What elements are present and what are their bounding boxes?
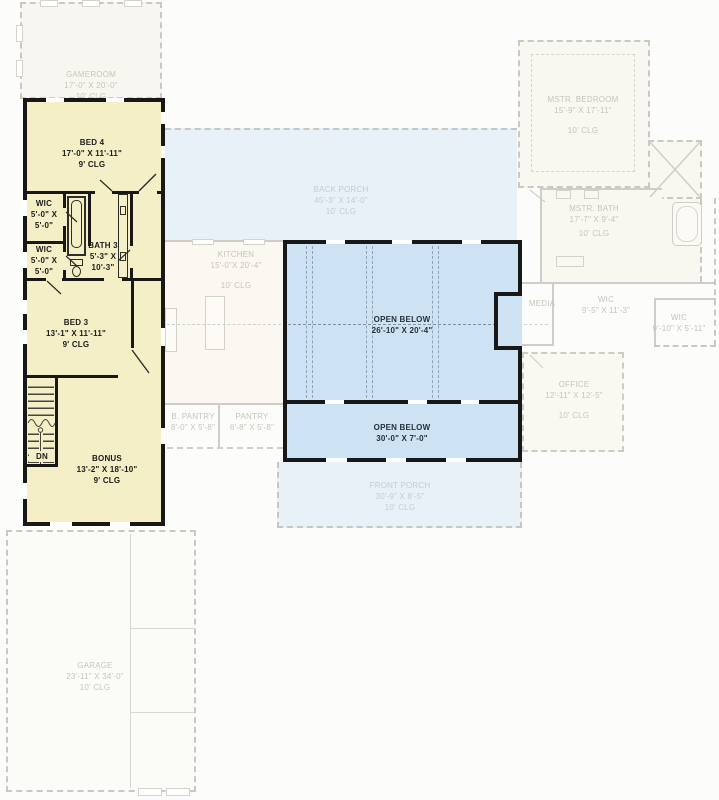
window-icon xyxy=(23,300,27,314)
room-label-bath3: BATH 3 5'-3" X 10'-3" xyxy=(78,240,128,273)
window-icon xyxy=(386,458,406,462)
beam-line xyxy=(312,246,313,398)
room-label-pantry: PANTRY 6'-8" X 5'-8" xyxy=(224,411,280,433)
stairs-treads-upper xyxy=(28,381,54,419)
wall xyxy=(512,282,716,284)
room-label-bed4: BED 4 17'-0" X 11'-11" 9' CLG xyxy=(42,137,142,170)
window-icon xyxy=(408,400,427,404)
wall xyxy=(540,188,542,284)
wall xyxy=(654,298,716,300)
garage-door-icon xyxy=(138,788,162,796)
room-label-wic-master: WIC 9'-5" X 11'-3" xyxy=(556,294,656,316)
window-icon xyxy=(110,522,130,526)
window-icon xyxy=(161,328,165,346)
garage-door-icon xyxy=(166,788,190,796)
door-opening xyxy=(63,252,66,270)
sink-icon xyxy=(584,190,599,199)
sink-icon xyxy=(120,206,126,215)
wall-dashed xyxy=(654,345,716,347)
counter-icon xyxy=(165,308,177,352)
ridge-line xyxy=(524,324,548,325)
room-label-front-porch: FRONT PORCH 30'-9" X 8'-5" 10' CLG xyxy=(330,480,470,513)
window-icon xyxy=(461,400,479,404)
door-opening xyxy=(63,208,66,226)
room-label-bed3: BED 3 13'-1" X 11'-11" 9' CLG xyxy=(26,317,126,350)
wall xyxy=(88,191,91,246)
window-icon xyxy=(161,146,165,158)
vanity-icon xyxy=(556,256,584,267)
room-label-bonus: BONUS 13'-2" X 18'-10" 9' CLG xyxy=(57,453,157,486)
stairs-dn-label: DN xyxy=(29,451,55,462)
window-icon xyxy=(325,400,344,404)
sink-icon xyxy=(556,190,571,199)
door-opening xyxy=(104,278,122,281)
door-opening xyxy=(95,191,112,194)
room-label-garage: GARAGE 23'-11" X 34'-0" 10' CLG xyxy=(40,660,150,693)
porch-edge-dashed xyxy=(167,447,283,449)
wall xyxy=(287,400,518,404)
label-open-below-main: OPEN BELOW 26'-10" X 20'-4" xyxy=(332,314,472,336)
kitchen-island-icon xyxy=(205,296,225,350)
room-label-wic2: WIC 5'-0" X 5'-0" xyxy=(26,244,62,277)
wall xyxy=(131,278,134,348)
window-icon xyxy=(326,240,345,244)
door-opening xyxy=(139,191,157,194)
wall xyxy=(552,284,554,344)
window-icon xyxy=(326,458,347,462)
room-label-b-pantry: B. PANTRY 8'-0" X 5'-8" xyxy=(165,411,221,433)
wall-dashed xyxy=(714,198,716,346)
wall xyxy=(130,628,194,629)
room-label-wic1: WIC 5'-0" X 5'-0" xyxy=(26,198,62,231)
window-icon xyxy=(192,239,214,245)
window-icon xyxy=(161,112,165,124)
window-icon xyxy=(40,0,58,7)
window-icon xyxy=(16,60,23,77)
wall xyxy=(27,464,55,467)
door-opening xyxy=(130,246,133,268)
wall xyxy=(165,240,283,242)
room-label-kitchen: KITCHEN 15'-0"X 20'-4" 10' CLG xyxy=(186,249,286,291)
door-opening xyxy=(46,278,62,281)
room-label-mstr-bedroom: MSTR. BEDROOM 15'-9" X 17'-11" 10' CLG xyxy=(523,94,643,136)
window-icon xyxy=(243,239,265,245)
window-icon xyxy=(124,0,142,7)
window-icon xyxy=(50,522,72,526)
window-icon xyxy=(23,483,27,499)
window-icon xyxy=(462,240,481,244)
wall xyxy=(165,403,283,405)
window-icon xyxy=(106,98,124,102)
window-icon xyxy=(392,240,412,244)
beam-line xyxy=(306,246,307,398)
window-icon xyxy=(82,0,100,7)
room-label-mstr-bath: MSTR. BATH 17'-7" X 9'-4" 10' CLG xyxy=(544,203,644,239)
room-label-wic-master2: WIC 9'-10" X 5'-11" xyxy=(644,312,714,334)
window-icon xyxy=(46,98,64,102)
room-label-back-porch: BACK PORCH 45'-3" X 14'-0" 10' CLG xyxy=(271,184,411,217)
room-label-office: OFFICE 12'-11" X 12'-5" 10' CLG xyxy=(524,379,624,421)
wall xyxy=(130,712,194,713)
label-open-below-front: OPEN BELOW 30'-0" X 7'-0" xyxy=(332,422,472,444)
bathtub-icon-inner xyxy=(676,206,698,242)
floor-plan: GAMEROOM 17'-0" X 20'-0" 10' CLG BACK PO… xyxy=(0,0,719,800)
window-icon xyxy=(16,25,23,42)
wall xyxy=(27,375,118,378)
window-icon xyxy=(446,458,466,462)
fireplace-icon xyxy=(494,292,522,350)
window-icon xyxy=(161,428,165,444)
ridge-line xyxy=(167,324,281,325)
